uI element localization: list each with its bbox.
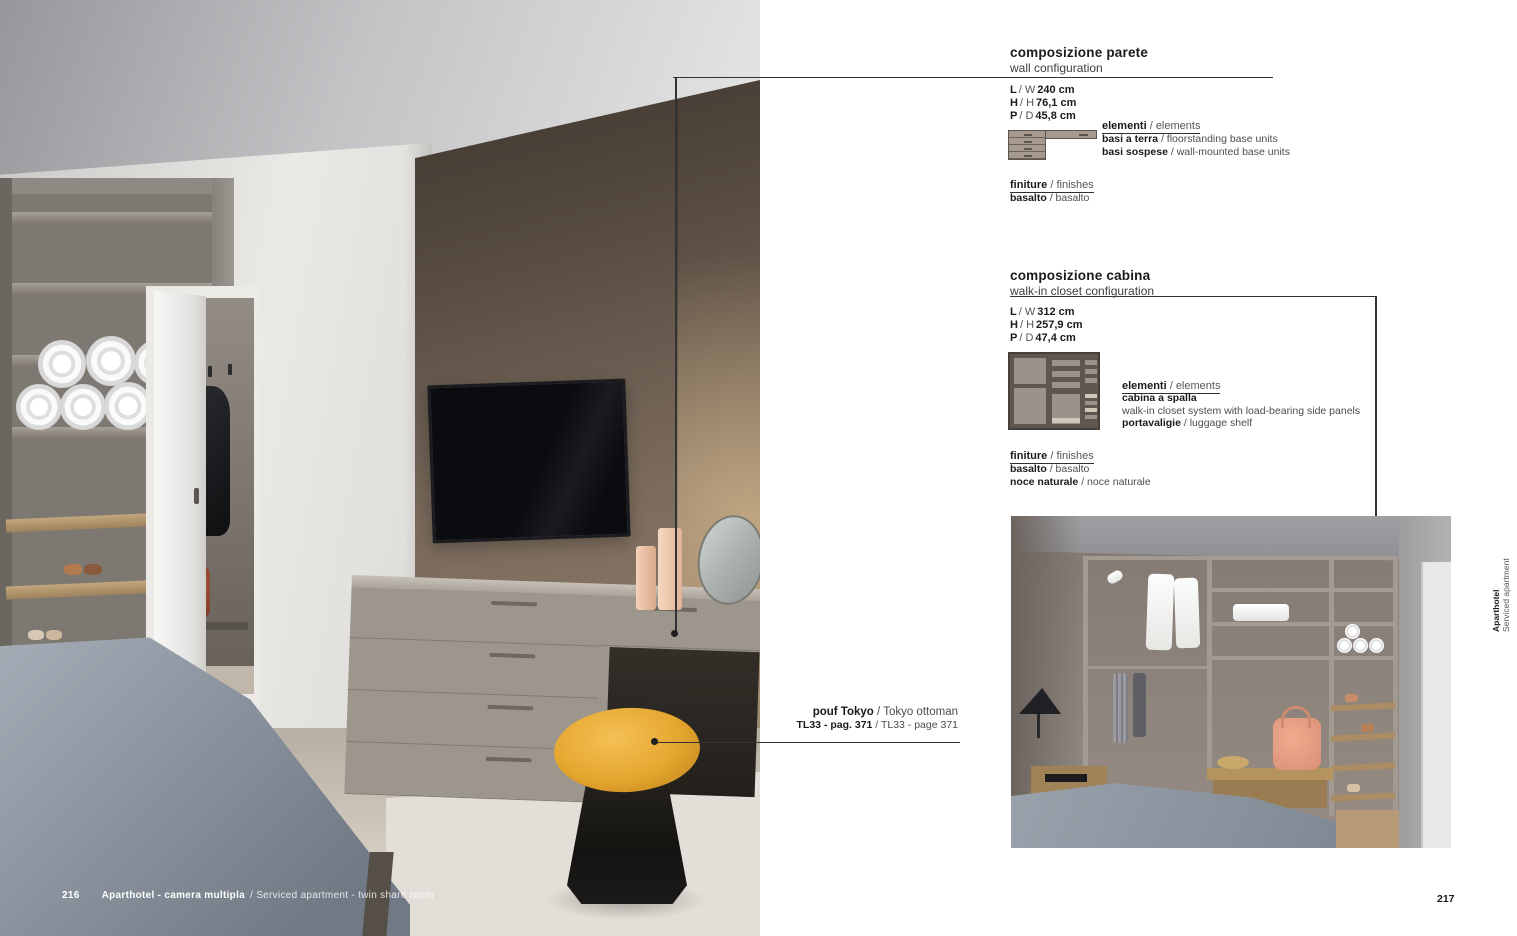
closet-shelf xyxy=(1329,588,1398,592)
callout-dot-pouf xyxy=(651,738,658,745)
diagram-small-shelf xyxy=(1085,369,1097,374)
wall-finishes-list: basalto / basalto xyxy=(1010,192,1089,205)
closet-shelf xyxy=(1207,588,1329,592)
hanging-bag xyxy=(1163,671,1179,691)
left-page-caption: Aparthotel - camera multipla/ Serviced a… xyxy=(102,890,434,901)
rolled-towel xyxy=(1369,638,1384,653)
diagram-shelf xyxy=(1052,360,1080,366)
catalog-spread: 216 Aparthotel - camera multipla/ Servic… xyxy=(0,0,1517,936)
callout-dot-wall xyxy=(671,630,678,637)
rolled-towel xyxy=(1345,624,1360,639)
diagram-shelf xyxy=(1052,382,1080,388)
shoe xyxy=(1345,694,1358,702)
dimension-row: H/ H257,9 cm xyxy=(1010,319,1085,331)
left-page-number: 216 xyxy=(62,890,80,901)
finish-row: basalto / basalto xyxy=(1010,192,1089,205)
wall-section-subtitle: wall configuration xyxy=(1010,61,1148,75)
closet-section-title: composizione cabina xyxy=(1010,268,1154,283)
straw-hat xyxy=(1217,756,1249,769)
closet-hanging-rail xyxy=(1088,666,1207,669)
closet-finishes-list: basalto / basalto noce naturale / noce n… xyxy=(1010,463,1151,488)
callout-line-pouf xyxy=(655,742,960,743)
element-row: cabina a spalla xyxy=(1122,392,1360,405)
diagram-wall-unit xyxy=(1045,130,1097,139)
element-row: walk-in closet system with load-bearing … xyxy=(1122,405,1360,418)
closet-section-subtitle: walk-in closet configuration xyxy=(1010,284,1154,298)
diagram-base-strip xyxy=(1052,418,1080,423)
diagram-panel xyxy=(1014,358,1046,384)
closet-door xyxy=(1421,562,1451,848)
rolled-towel xyxy=(60,384,106,430)
rolled-towel xyxy=(1353,638,1368,653)
side-tab: Aparthotel Serviced apartment xyxy=(1492,542,1511,632)
white-shirt xyxy=(1146,574,1175,651)
element-row: basi sospese / wall-mounted base units xyxy=(1102,146,1290,159)
wall-elements-list: basi a terra / floorstanding base units … xyxy=(1102,133,1290,158)
closet-shelf xyxy=(1329,656,1398,660)
diagram-small-shelf xyxy=(1085,360,1097,365)
left-page-footer: 216 Aparthotel - camera multipla/ Servic… xyxy=(62,890,434,901)
dimension-row: P/ D45,8 cm xyxy=(1010,110,1078,122)
diagram-shelf xyxy=(1052,371,1080,377)
wall-section-dimensions: L/ W240 cm H/ H76,1 cm P/ D45,8 cm xyxy=(1010,84,1078,123)
shoe xyxy=(1347,784,1360,792)
wall-finishes-heading: finiture / finishes xyxy=(1010,175,1094,193)
drawer-handle xyxy=(486,757,532,763)
pink-bag xyxy=(1273,718,1321,770)
closet-shelf xyxy=(1207,622,1329,626)
walk-in-closet-front-diagram-icon xyxy=(1008,352,1100,430)
pouf-callout-line2: TL33 - pag. 371 / TL33 - page 371 xyxy=(797,719,958,731)
finish-row: noce naturale / noce naturale xyxy=(1010,476,1151,489)
pouf-callout-line1: pouf Tokyo / Tokyo ottoman xyxy=(797,706,958,718)
dimension-row: L/ W312 cm xyxy=(1010,306,1085,318)
closet-shelf xyxy=(1329,622,1398,626)
wall-lamp-arm xyxy=(1037,712,1040,738)
finish-row: basalto / basalto xyxy=(1010,463,1151,476)
pouf-callout: pouf Tokyo / Tokyo ottoman TL33 - pag. 3… xyxy=(797,706,958,731)
diagram-small-shelf xyxy=(1085,401,1097,405)
closet-section-dimensions: L/ W312 cm H/ H257,9 cm P/ D47,4 cm xyxy=(1010,306,1085,345)
drawer-handle xyxy=(491,601,537,607)
wall-mounted-tv xyxy=(427,379,630,544)
coat-hook xyxy=(208,366,212,377)
closet-upright xyxy=(1393,556,1398,816)
diagram-drawer-stack xyxy=(1008,130,1046,160)
bedroom-photo: 216 Aparthotel - camera multipla/ Servic… xyxy=(0,0,760,936)
dimension-row: P/ D47,4 cm xyxy=(1010,332,1085,344)
walk-in-closet-photo xyxy=(1011,516,1451,848)
dimension-row: L/ W240 cm xyxy=(1010,84,1078,96)
closet-elements-list: cabina a spalla walk-in closet system wi… xyxy=(1122,392,1360,430)
diagram-panel xyxy=(1014,388,1046,424)
rolled-towel xyxy=(104,382,152,430)
callout-line-wall-vertical xyxy=(675,77,677,635)
shoe xyxy=(64,564,82,575)
dresser xyxy=(344,575,760,807)
shoe xyxy=(1361,724,1374,732)
door-handle xyxy=(194,488,199,504)
shelf xyxy=(12,212,212,224)
drawer-handle xyxy=(487,705,533,711)
white-shirt xyxy=(1174,578,1200,649)
dimension-row: H/ H76,1 cm xyxy=(1010,97,1078,109)
candle xyxy=(636,546,656,610)
diagram-small-shelf xyxy=(1085,394,1097,398)
rolled-towel xyxy=(38,340,86,388)
shoe xyxy=(28,630,44,640)
drawer-handle xyxy=(489,653,535,659)
book xyxy=(1045,774,1087,782)
wall-section-heading: composizione parete wall configuration xyxy=(1010,45,1148,75)
side-tab-subtitle: Serviced apartment xyxy=(1502,542,1512,632)
coat-hook xyxy=(228,364,232,375)
closet-section-heading: composizione cabina walk-in closet confi… xyxy=(1010,268,1154,298)
shelf-top xyxy=(0,178,234,194)
wall-elements-heading: elementi / elements xyxy=(1102,116,1200,134)
diagram-small-shelf xyxy=(1085,408,1097,412)
shoe xyxy=(84,564,102,575)
element-row: portavaligie / luggage shelf xyxy=(1122,417,1360,430)
candle xyxy=(658,528,682,610)
hanging-garment xyxy=(1113,673,1128,743)
diagram-small-shelf xyxy=(1085,415,1097,419)
folded-towels xyxy=(1233,604,1289,621)
rolled-towel xyxy=(16,384,62,430)
hanging-garment xyxy=(1133,673,1146,737)
rolled-towel xyxy=(86,336,136,386)
right-page-number: 217 xyxy=(1437,893,1455,905)
dresser-with-wall-unit-diagram-icon xyxy=(1008,128,1098,162)
open-door xyxy=(154,290,206,704)
shoe xyxy=(46,630,62,640)
closet-top-rail xyxy=(1083,556,1398,560)
diagram-small-shelf xyxy=(1085,378,1097,383)
closet-shelf xyxy=(1207,656,1329,660)
rolled-towel xyxy=(1337,638,1352,653)
callout-line-wall-horizontal xyxy=(673,77,1273,78)
wall-section-title: composizione parete xyxy=(1010,45,1148,60)
closet-finishes-heading: finiture / finishes xyxy=(1010,446,1094,464)
element-row: basi a terra / floorstanding base units xyxy=(1102,133,1290,146)
